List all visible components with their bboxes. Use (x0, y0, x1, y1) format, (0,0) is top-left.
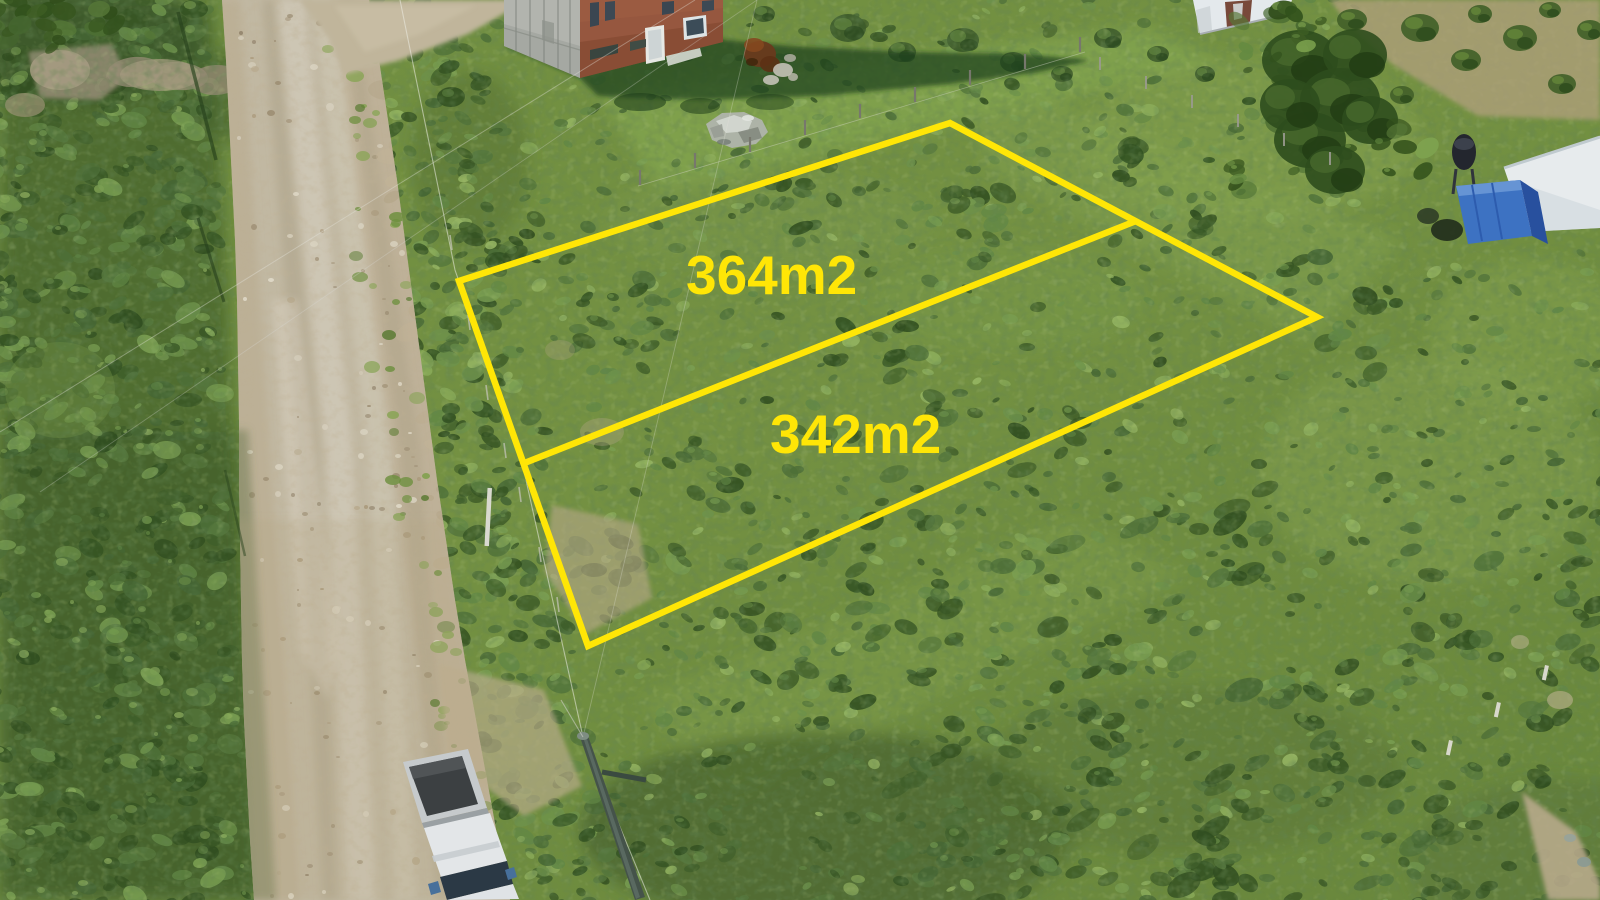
svg-text:364m2: 364m2 (686, 244, 857, 306)
svg-text:342m2: 342m2 (770, 403, 941, 465)
